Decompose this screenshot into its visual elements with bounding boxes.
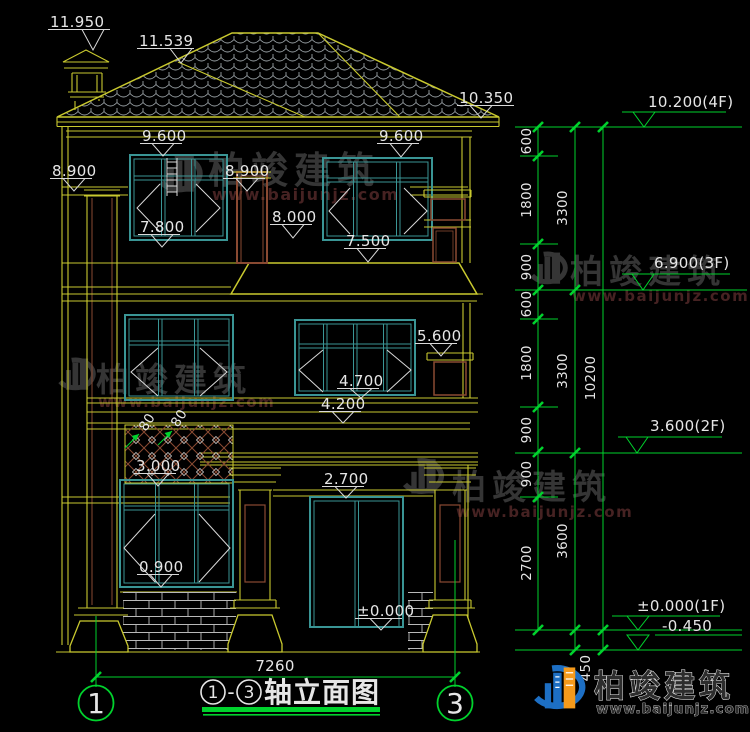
roof-fascia <box>57 117 499 127</box>
level-marker-2f: 3.600(2F) <box>618 417 726 453</box>
elev-f2-parapet-top: 5.600 <box>415 327 461 356</box>
dimension-chains: 600 1800 900 600 1800 900 900 2700 3300 … <box>519 122 608 681</box>
svg-text:3.600(2F): 3.600(2F) <box>650 417 726 435</box>
watermark-site: www.baijunjz.com <box>456 503 633 521</box>
dim-label: 900 <box>519 461 535 488</box>
title-underline-thick <box>202 707 380 712</box>
svg-text:0.900: 0.900 <box>139 558 183 576</box>
elev-f1-door-top: 2.700 <box>322 470 368 498</box>
svg-text:10.350: 10.350 <box>459 89 513 107</box>
svg-text:8.900: 8.900 <box>225 162 269 180</box>
dim-label: 1800 <box>519 182 535 218</box>
svg-text:10.200(4F): 10.200(4F) <box>648 93 733 111</box>
svg-text:7.800: 7.800 <box>140 218 184 236</box>
dim-label: 10200 <box>583 356 599 400</box>
svg-text:4.200: 4.200 <box>321 395 365 413</box>
elev-f3-win-top-left: 9.600 <box>140 127 186 156</box>
dim-label: 3600 <box>555 523 571 559</box>
elev-f3-parapet-top: 8.000 <box>270 208 316 238</box>
hip-roof <box>57 33 499 117</box>
level-marker-4f: 10.200(4F) <box>622 93 733 127</box>
axis-bubble-right: 3 <box>438 686 473 721</box>
watermark-logo-icon <box>532 253 565 284</box>
drawing-canvas: 柏竣建筑 www.baijunjz.com 柏竣建筑 www.baijunjz.… <box>0 0 750 732</box>
brand-logo-icon <box>536 667 582 708</box>
dim-label: 600 <box>519 128 535 155</box>
brand-logo-name: 柏竣建筑 <box>594 669 734 705</box>
title-text: 轴立面图 <box>264 676 380 709</box>
drawing-title: 1 - 3 轴立面图 <box>201 676 380 716</box>
overall-width: 7260 <box>255 657 294 675</box>
elev-f3-win-top-right: 9.600 <box>377 127 423 157</box>
svg-text:5.600: 5.600 <box>417 327 461 345</box>
watermark-logo-icon <box>60 359 93 390</box>
svg-text:11.950: 11.950 <box>50 13 104 31</box>
svg-text:3: 3 <box>244 683 255 703</box>
brand-logo: 柏竣建筑 www.baijunjz.com <box>536 667 749 717</box>
dim-label: 1800 <box>519 345 535 381</box>
brand-logo-site: www.baijunjz.com <box>596 701 750 717</box>
f2-right-parapet <box>427 353 473 395</box>
svg-text:±0.000(1F): ±0.000(1F) <box>637 597 725 615</box>
cad-elevation-drawing: 柏竣建筑 www.baijunjz.com 柏竣建筑 www.baijunjz.… <box>0 0 750 732</box>
svg-text:1: 1 <box>87 687 105 720</box>
svg-text:6.900(3F): 6.900(3F) <box>654 254 730 272</box>
axis-bubble-left: 1 <box>79 686 114 721</box>
dim-label: 600 <box>519 291 535 318</box>
roof <box>57 33 499 137</box>
svg-text:-: - <box>227 680 234 704</box>
svg-text:3: 3 <box>446 687 464 720</box>
svg-text:2.700: 2.700 <box>324 470 368 488</box>
svg-text:3.000: 3.000 <box>136 457 180 475</box>
elev-f3-sill: 7.800 <box>138 218 184 247</box>
svg-text:7.500: 7.500 <box>346 232 390 250</box>
elev-f3-parapet-sill: 7.500 <box>344 232 390 262</box>
watermark-site: www.baijunjz.com <box>212 185 399 204</box>
svg-text:±0.000: ±0.000 <box>357 602 414 620</box>
svg-text:11.539: 11.539 <box>139 32 193 50</box>
column-left-edge <box>70 608 128 652</box>
svg-text:4.700: 4.700 <box>339 372 383 390</box>
svg-text:-0.450: -0.450 <box>662 617 712 635</box>
svg-text:9.600: 9.600 <box>379 127 423 145</box>
svg-text:1: 1 <box>208 683 219 703</box>
elev-f2-balcony: 4.200 <box>319 395 365 423</box>
f2-canopy-roof <box>231 263 477 294</box>
elev-f1-floor: ±0.000 <box>355 602 414 630</box>
dim-label: 900 <box>519 254 535 281</box>
svg-text:9.600: 9.600 <box>142 127 186 145</box>
svg-text:8.000: 8.000 <box>272 208 316 226</box>
dim-label: 900 <box>519 417 535 444</box>
dim-label: 3300 <box>555 353 571 389</box>
svg-text:8.900: 8.900 <box>52 162 96 180</box>
title-underline-thin <box>203 714 380 716</box>
watermark-logo-icon <box>405 459 441 493</box>
right-level-lines <box>515 127 747 650</box>
dim-label: 2700 <box>519 545 535 581</box>
dim-label: 3300 <box>555 190 571 226</box>
elev-chimney-top: 11.950 <box>48 13 110 50</box>
